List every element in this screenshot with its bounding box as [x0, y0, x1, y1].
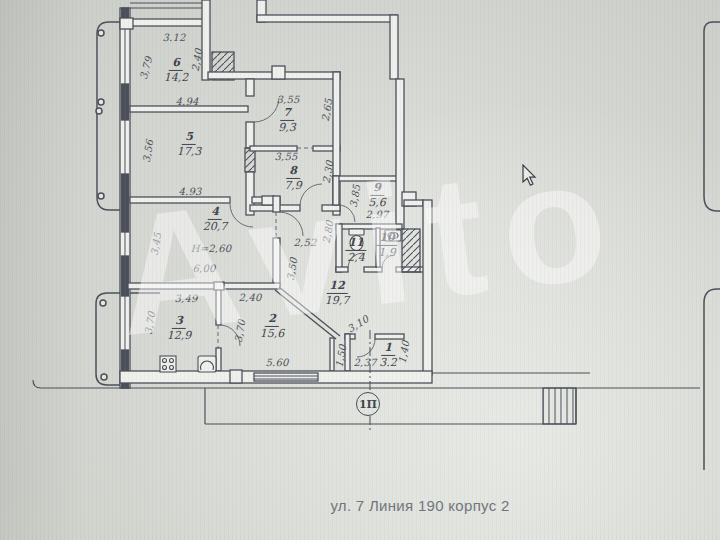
- washbasin-icon: [385, 230, 401, 241]
- building-outline-right: [704, 22, 720, 470]
- screen-photo: 3.122,403,794.943,552,653,564.933,552,30…: [0, 0, 720, 540]
- mouse-cursor: [522, 164, 538, 188]
- stove-icon: [160, 356, 176, 372]
- toilet-icon: [349, 229, 364, 251]
- section-mark: 1П: [356, 392, 380, 416]
- stair-hatch: [543, 388, 576, 424]
- address-caption: ул. 7 Линия 190 корпус 2: [0, 497, 720, 514]
- floor-plan-drawing: [0, 0, 720, 540]
- kitchen-sink-icon: [198, 356, 216, 372]
- walls: [120, 0, 432, 388]
